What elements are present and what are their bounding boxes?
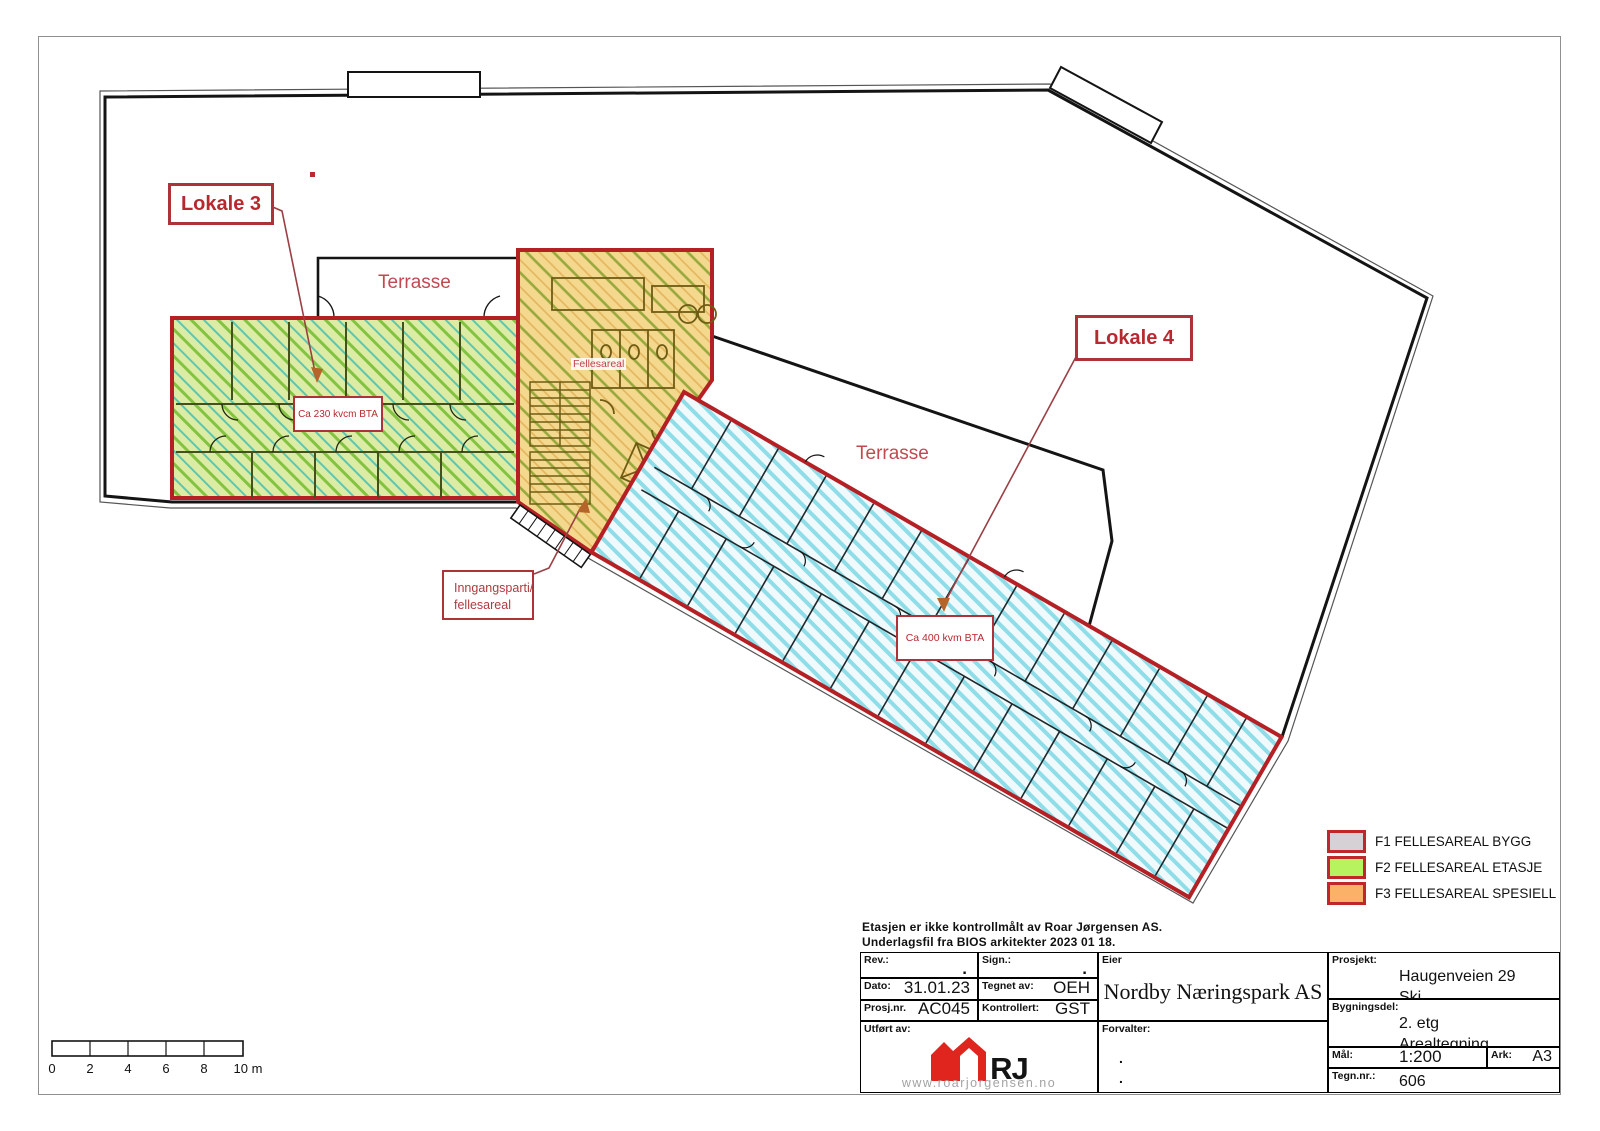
dato-value: 31.01.23 [904,978,970,998]
scale-tick: 6 [162,1061,169,1076]
sign-label: Sign.: [982,954,1011,966]
kontrollert-label: Kontrollert: [982,1002,1039,1014]
roof-bump-top [348,72,480,97]
rev-value: . [962,959,967,979]
maal-label: Mål: [1332,1049,1353,1061]
scale-tick: 8 [200,1061,207,1076]
legend-label-f1: F1 FELLESAREAL BYGG [1375,834,1531,849]
area-label-lokale3: Ca 230 kvcm BTA [293,396,383,432]
scale-tick: 4 [124,1061,131,1076]
forvalter-dot2: . [1119,1070,1123,1086]
tegnnr-value: 606 [1399,1073,1426,1091]
legend-swatch-f2 [1327,856,1366,879]
legend: F1 FELLESAREAL BYGG F2 FELLESAREAL ETASJ… [1327,832,1556,902]
red-dot-marker [310,172,315,177]
ark-value: A3 [1532,1048,1552,1066]
rj-logo-url: www.roarjorgensen.no [861,1076,1097,1090]
forvalter-dot1: . [1119,1050,1123,1066]
eier-value: Nordby Næringspark AS [1099,979,1327,1005]
scale-bar: 0 2 4 6 8 10 m [48,1041,262,1076]
dato-label: Dato: [864,980,891,992]
terrasse-label-left: Terrasse [378,272,451,294]
cell-prosjnr: Prosj.nr. AC045 [860,1000,978,1021]
cell-forvalter: Forvalter: . . [1098,1021,1328,1093]
legend-item-f2: F2 FELLESAREAL ETASJE [1327,858,1556,876]
cell-sign: Sign.: . [978,952,1098,978]
sign-value: . [1082,959,1087,979]
legend-item-f1: F1 FELLESAREAL BYGG [1327,832,1556,850]
cell-bygningsdel: Bygningsdel: 2. etg Arealtegning [1328,999,1560,1047]
cell-maal: Mål: 1:200 [1328,1047,1487,1068]
bygningsdel-label: Bygningsdel: [1332,1001,1399,1013]
rev-label: Rev.: [864,954,889,966]
inngangsparti-line2: fellesareal [454,597,526,614]
cell-tegnnr: Tegn.nr.: 606 [1328,1068,1560,1093]
lokale4-label: Lokale 4 [1075,315,1193,361]
cell-ark: Ark: A3 [1487,1047,1560,1068]
drawing-page: 0 2 4 6 8 10 m Lokale 3 Lokale 4 Terrass… [0,0,1600,1131]
legend-item-f3: F3 FELLESAREAL SPESIELL [1327,884,1556,902]
tegnnr-label: Tegn.nr.: [1332,1070,1376,1082]
scale-tick: 2 [86,1061,93,1076]
tegnet-av-label: Tegnet av: [982,980,1034,992]
scale-tick: 10 m [234,1061,263,1076]
legend-swatch-f1 [1327,830,1366,853]
prosjnr-value: AC045 [918,999,970,1019]
scale-tick: 0 [48,1061,55,1076]
cell-rev: Rev.: . [860,952,978,978]
cell-dato: Dato: 31.01.23 [860,978,978,1000]
forvalter-label: Forvalter: [1102,1023,1150,1035]
utfort-av-label: Utført av: [864,1023,911,1035]
cell-eier: Eier Nordby Næringspark AS [1098,952,1328,1021]
lokale3-label: Lokale 3 [168,183,274,225]
legend-swatch-f3 [1327,882,1366,905]
cell-tegnet-av: Tegnet av: OEH [978,978,1098,1000]
title-block: Rev.: . Sign.: . Dato: 31.01.23 Tegnet a… [860,952,1560,1093]
maal-value: 1:200 [1399,1047,1442,1067]
inngangsparti-line1: Inngangsparti/ [454,580,526,597]
cell-utfort-av: Utført av: RJ www.roarjorgensen.no [860,1021,1098,1093]
prosjekt-line1: Haugenveien 29 [1399,966,1516,987]
eier-label: Eier [1102,954,1122,966]
cell-kontrollert: Kontrollert: GST [978,1000,1098,1021]
kontrollert-value: GST [1055,999,1090,1019]
prosjnr-label: Prosj.nr. [864,1002,906,1014]
bygningsdel-line1: 2. etg [1399,1013,1489,1034]
tegnet-av-value: OEH [1053,978,1090,998]
note-line-2: Underlagsfil fra BIOS arkitekter 2023 01… [862,935,1162,950]
drawing-notes: Etasjen er ikke kontrollmålt av Roar Jør… [862,920,1162,950]
prosjekt-label: Prosjekt: [1332,954,1377,966]
fellesareal-label: Fellesareal [571,358,626,370]
inngangsparti-label: Inngangsparti/ fellesareal [442,570,534,620]
legend-label-f3: F3 FELLESAREAL SPESIELL [1375,886,1556,901]
terrasse-label-right: Terrasse [856,443,929,465]
cell-prosjekt: Prosjekt: Haugenveien 29 Ski [1328,952,1560,999]
ark-label: Ark: [1491,1049,1512,1061]
legend-label-f2: F2 FELLESAREAL ETASJE [1375,860,1542,875]
note-line-1: Etasjen er ikke kontrollmålt av Roar Jør… [862,920,1162,935]
area-label-lokale4: Ca 400 kvm BTA [896,615,994,661]
